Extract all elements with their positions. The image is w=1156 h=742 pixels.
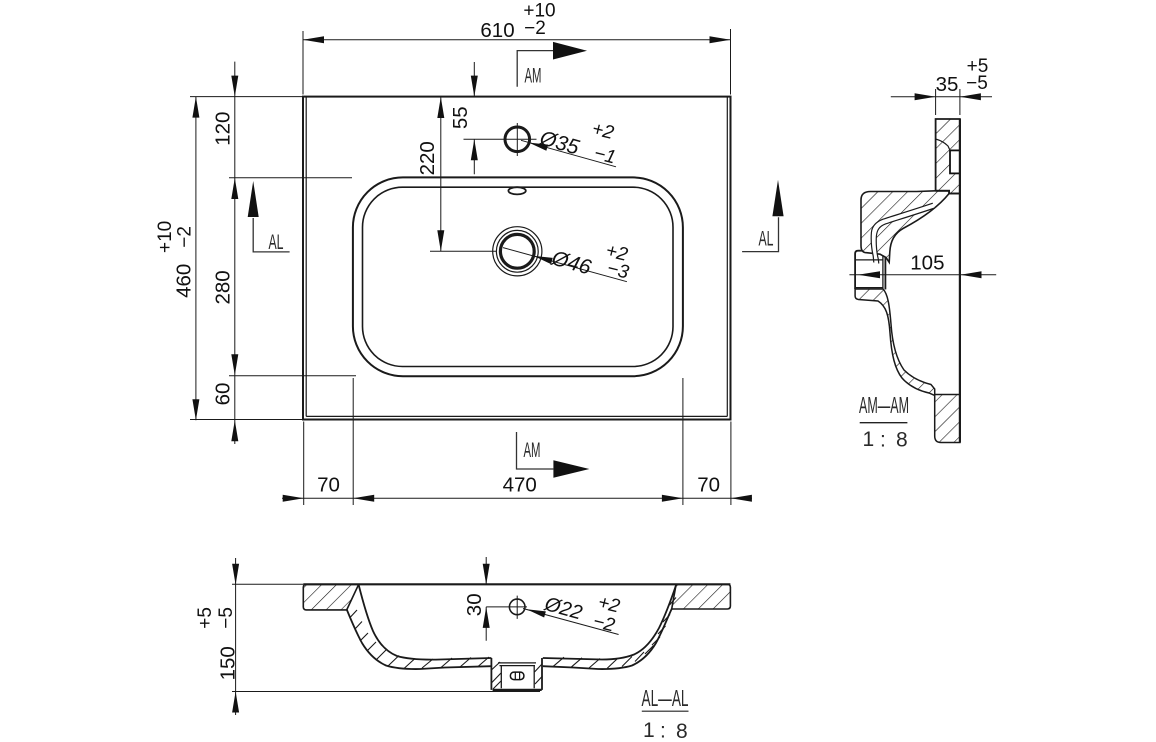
svg-text:280: 280 [212,270,235,304]
svg-text:1: 1 [643,719,655,742]
svg-text:−5: −5 [966,73,988,94]
svg-text::: : [660,720,666,742]
svg-text:−5: −5 [216,607,237,629]
svg-text:30: 30 [463,593,486,616]
svg-text:470: 470 [503,474,537,497]
svg-text:AL: AL [759,228,774,251]
svg-text:8: 8 [896,428,908,451]
svg-text:AL—AL: AL—AL [642,685,689,711]
svg-text::: : [880,429,886,452]
svg-text:+5: +5 [195,607,216,629]
svg-text:70: 70 [317,474,340,497]
svg-text:+10: +10 [155,221,176,253]
svg-text:220: 220 [416,141,439,175]
svg-text:35: 35 [936,73,959,96]
svg-text:150: 150 [217,646,240,680]
svg-text:120: 120 [212,112,235,146]
svg-text:−2: −2 [524,18,546,39]
svg-text:AL: AL [269,231,284,254]
svg-text:60: 60 [212,383,235,406]
svg-text:70: 70 [697,474,720,497]
svg-text:1: 1 [863,428,875,451]
svg-text:460: 460 [172,264,195,298]
svg-text:105: 105 [910,252,944,275]
svg-text:AM—AM: AM—AM [859,392,909,418]
svg-text:610: 610 [480,19,514,42]
svg-text:AM: AM [524,439,541,462]
svg-text:AM: AM [525,65,542,88]
svg-text:−2: −2 [174,226,195,248]
svg-text:55: 55 [449,106,472,129]
svg-text:8: 8 [676,720,688,742]
